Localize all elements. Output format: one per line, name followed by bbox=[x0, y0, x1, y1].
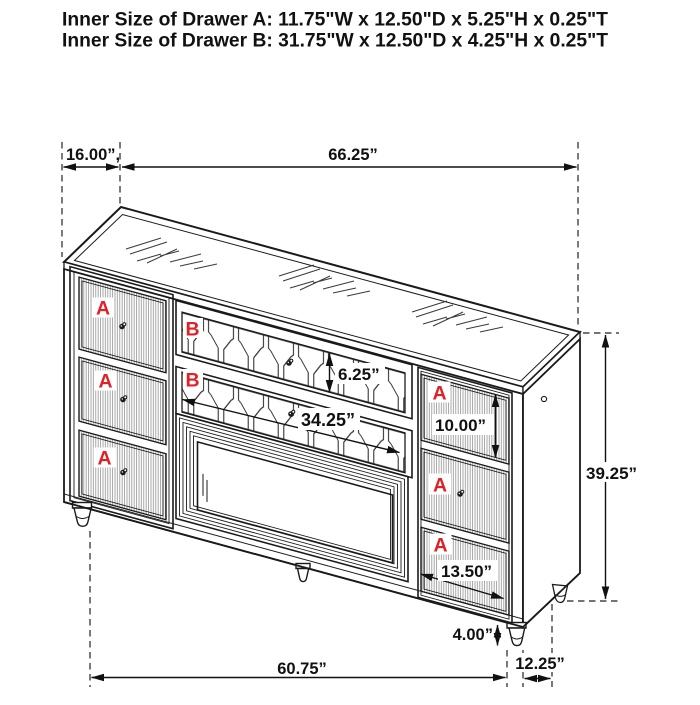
svg-text:A: A bbox=[96, 298, 110, 320]
svg-text:60.75”: 60.75” bbox=[277, 660, 327, 678]
svg-text:Inner Size of Drawer A: 11.75": Inner Size of Drawer A: 11.75"W x 12.50"… bbox=[62, 9, 608, 31]
svg-text:Inner Size of Drawer B: 31.75": Inner Size of Drawer B: 31.75"W x 12.50"… bbox=[62, 30, 608, 52]
svg-text:10.00”: 10.00” bbox=[435, 416, 486, 435]
svg-text:13.50”: 13.50” bbox=[441, 562, 492, 581]
svg-text:A: A bbox=[433, 535, 447, 557]
svg-text:4.00”: 4.00” bbox=[453, 626, 493, 644]
svg-text:12.25”: 12.25” bbox=[515, 655, 565, 673]
svg-text:39.25”: 39.25” bbox=[586, 464, 637, 483]
svg-text:66.25”: 66.25” bbox=[328, 146, 378, 164]
svg-text:A: A bbox=[433, 475, 447, 497]
svg-text:A: A bbox=[98, 371, 112, 393]
svg-text:16.00”,: 16.00”, bbox=[66, 146, 120, 164]
svg-text:34.25”: 34.25” bbox=[301, 410, 355, 430]
svg-text:B: B bbox=[185, 319, 199, 341]
svg-text:A: A bbox=[97, 448, 111, 470]
svg-text:B: B bbox=[185, 370, 199, 392]
svg-text:A: A bbox=[432, 383, 446, 405]
svg-text:6.25”: 6.25” bbox=[338, 365, 380, 384]
